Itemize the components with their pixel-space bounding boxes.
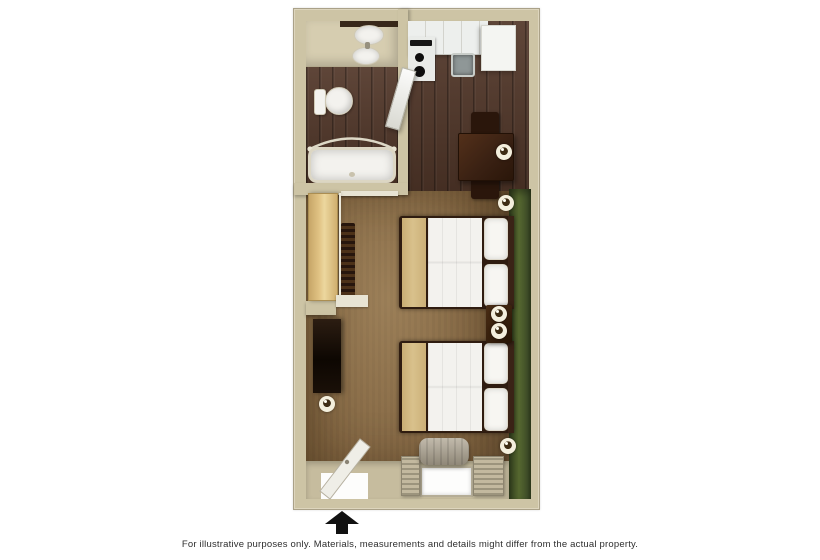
bed-1 [399, 216, 514, 309]
burner-icon [415, 53, 424, 62]
window [420, 466, 473, 497]
floor-plan [293, 8, 540, 510]
entrance-arrow-icon [325, 511, 359, 535]
nightstand-lamp-icon [491, 323, 507, 339]
disclaimer-text: For illustrative purposes only. Material… [0, 539, 820, 550]
bed-1-pillow [484, 218, 508, 260]
table-lamp-icon [496, 144, 512, 160]
bed-2-pillow [484, 388, 508, 431]
refrigerator [481, 25, 516, 71]
closet-bottom-shelf-trim [336, 295, 368, 307]
bed-2-headboard [508, 341, 514, 433]
bed-1-pillow [484, 264, 508, 307]
tv-dresser [313, 319, 341, 393]
bed-1-headboard [508, 216, 514, 309]
bed-2 [399, 341, 514, 433]
curtain-right [473, 456, 504, 496]
toilet [325, 87, 353, 115]
stove-control-strip [410, 40, 432, 46]
page: { "disclaimer": "For illustrative purpos… [0, 0, 820, 560]
nightstand-lamp-icon [491, 306, 507, 322]
entry-door [314, 429, 376, 501]
ac-unit [419, 438, 469, 465]
closet-stub-wall [306, 301, 336, 315]
bathroom-sink [352, 47, 380, 65]
curtain-left [401, 456, 420, 496]
bed-2-pillow [484, 343, 508, 384]
bathroom-vanity [306, 21, 398, 67]
closet-top-shelf-trim [341, 191, 398, 196]
dresser-lamp-icon [319, 396, 335, 412]
bed-1-head-lamp-icon [498, 195, 514, 211]
kitchen-sink [451, 53, 475, 77]
bed-2-blanket [402, 343, 426, 431]
faucet-icon [365, 42, 370, 49]
bed-2-duvet [428, 343, 482, 431]
hanging-clothes [341, 223, 355, 301]
bathtub [308, 147, 396, 183]
window-lamp-icon [500, 438, 516, 454]
closet-sliding-door [308, 193, 338, 301]
bed-1-duvet [428, 218, 482, 307]
bed-1-blanket [402, 218, 426, 307]
